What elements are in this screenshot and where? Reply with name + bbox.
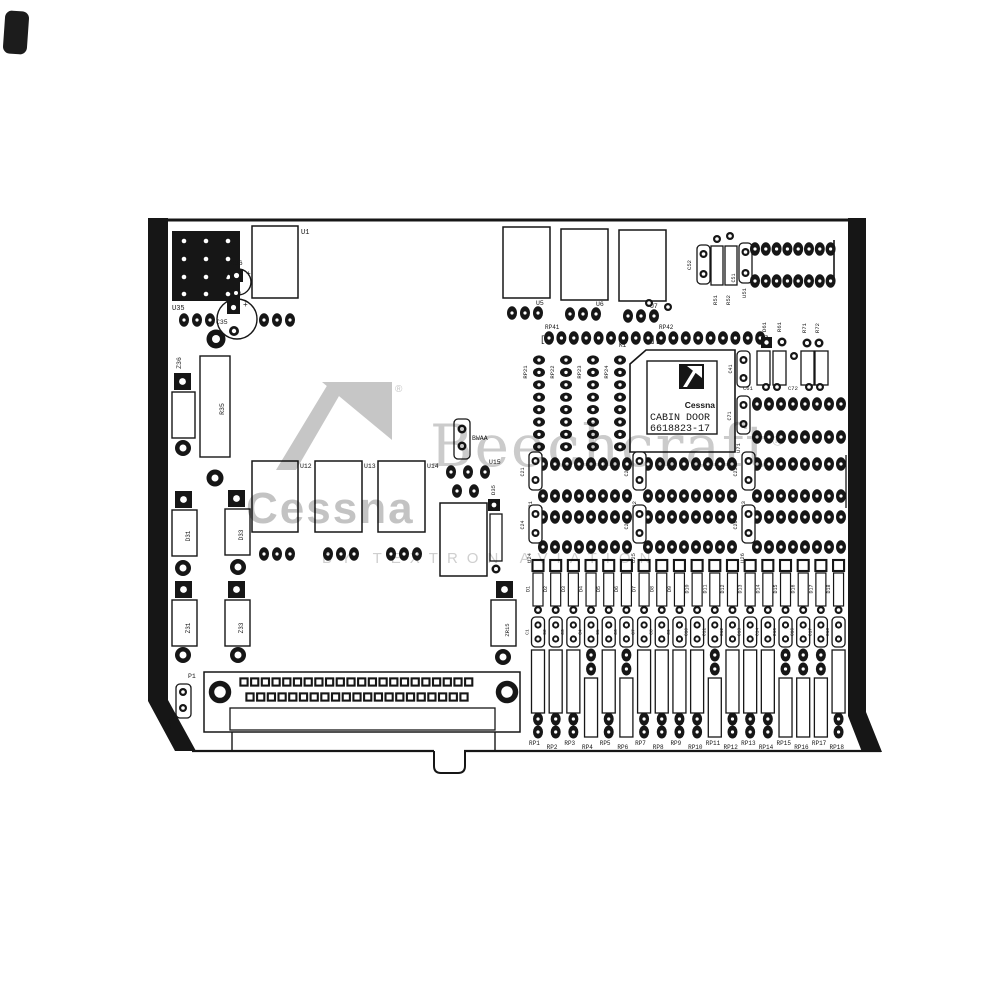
pad-hole: [702, 272, 706, 276]
ref-label: D7: [632, 586, 638, 592]
diode-outline: [568, 573, 578, 606]
ref-label: C1: [525, 629, 531, 635]
pad-hole: [779, 545, 782, 548]
ref-label: RP23: [576, 365, 583, 378]
pad-hole: [803, 435, 806, 438]
ref-label: RP1: [529, 740, 540, 747]
ref-label: C51: [731, 273, 737, 282]
resistor-pack-outline: [567, 650, 580, 713]
pad-hole: [718, 545, 721, 548]
pad-hole: [577, 462, 580, 465]
ref-label: C18: [825, 628, 831, 636]
pad-hole: [748, 608, 752, 612]
ref-label: C72: [788, 385, 798, 392]
open-square-pad: [401, 678, 408, 685]
pad-hole: [715, 237, 719, 241]
pad-hole: [275, 552, 278, 555]
pad-hole: [678, 717, 681, 720]
pad-hole: [589, 653, 592, 656]
pad-hole: [288, 552, 291, 555]
ref-label: D8: [649, 586, 655, 592]
pad-hole: [755, 402, 758, 405]
pad-hole: [180, 565, 187, 572]
pad-hole: [791, 545, 794, 548]
pad-hole: [639, 314, 642, 317]
open-square-pad: [727, 560, 738, 571]
pad-hole: [779, 515, 782, 518]
open-square-pad: [422, 678, 429, 685]
open-square-pad: [692, 560, 703, 571]
ref-label: RP4: [582, 744, 593, 751]
resistor-outline: [711, 246, 723, 285]
pad-hole: [666, 305, 670, 309]
pad-hole: [618, 396, 621, 399]
open-square-pad: [369, 678, 376, 685]
ref-label: BWAA: [472, 435, 488, 442]
pad-hole: [534, 459, 538, 463]
pad-hole: [572, 730, 575, 733]
bracket-mark: [: [655, 335, 660, 345]
pad-hole: [731, 637, 734, 640]
pad-hole: [837, 637, 840, 640]
ref-label: RP42: [659, 324, 674, 331]
pad-hole: [802, 637, 805, 640]
ic-outline: [440, 503, 487, 576]
connector-pin: [182, 239, 187, 244]
pad-hole: [775, 279, 778, 282]
pad-hole: [706, 545, 709, 548]
pad-hole: [618, 408, 621, 411]
connector-pin: [182, 257, 187, 262]
polarity-mark: +: [246, 270, 251, 279]
ref-label: RP9: [670, 740, 681, 747]
ic-outline: [619, 230, 666, 301]
pad-hole: [730, 515, 733, 518]
pad-hole: [784, 667, 787, 670]
open-square-pad: [294, 678, 301, 685]
pad-hole: [706, 494, 709, 497]
pad-hole: [731, 717, 734, 720]
pad-hole: [642, 637, 645, 640]
pad-hole: [618, 371, 621, 374]
pad-hole: [234, 291, 238, 295]
pad-hole: [837, 730, 840, 733]
open-square-pad: [674, 560, 685, 571]
pad-hole: [560, 336, 563, 339]
pad-hole: [591, 396, 594, 399]
pad-hole: [500, 654, 507, 661]
pad-hole: [802, 667, 805, 670]
pad-hole: [536, 623, 539, 626]
ic-outline: [561, 229, 608, 300]
pad-hole: [622, 336, 625, 339]
pad-hole: [613, 545, 616, 548]
pad-hole: [212, 335, 220, 343]
pad-hole: [837, 608, 841, 612]
resistor-pack-outline: [797, 678, 810, 737]
ref-label: U1: [301, 229, 309, 237]
pad-hole: [195, 318, 198, 321]
pad-hole: [618, 358, 621, 361]
pad-hole: [767, 545, 770, 548]
pad-hole: [775, 385, 779, 389]
open-square-pad: [279, 693, 286, 700]
pad-hole: [764, 247, 767, 250]
pad-hole: [589, 608, 593, 612]
resistor-pack-outline: [585, 678, 598, 737]
pad-hole: [784, 608, 788, 612]
ref-label: D14: [755, 584, 761, 593]
pad-hole: [767, 462, 770, 465]
resistor-pack-outline: [549, 650, 562, 713]
ref-label: RP6: [617, 744, 628, 751]
ref-label: D2: [543, 586, 549, 592]
pad-hole: [646, 545, 649, 548]
ref-label: RP18: [830, 744, 845, 751]
pad-hole: [235, 652, 242, 659]
pad-hole: [803, 545, 806, 548]
ref-label: C41: [728, 364, 734, 373]
ref-label: D9: [667, 586, 673, 592]
ref-label: D1: [526, 586, 532, 592]
open-square-pad: [439, 693, 446, 700]
ref-label: C14: [754, 628, 760, 636]
pad-hole: [702, 252, 706, 256]
ref-label: C35: [216, 319, 228, 326]
pad-hole: [180, 445, 187, 452]
open-square-pad: [709, 560, 720, 571]
resistor-pack-outline: [726, 650, 739, 713]
ref-label: C5: [595, 629, 601, 635]
pad-hole: [791, 494, 794, 497]
ref-label: R35: [219, 403, 226, 415]
pad-hole: [747, 531, 751, 535]
pad-hole: [753, 247, 756, 250]
ic-outline: [315, 461, 362, 532]
pad-hole: [819, 623, 822, 626]
pad-hole: [536, 311, 539, 314]
ic-outline: [378, 461, 425, 532]
pad-hole: [706, 515, 709, 518]
pad-hole: [565, 515, 568, 518]
pad-hole: [618, 433, 621, 436]
pad-hole: [564, 358, 567, 361]
open-square-pad: [407, 693, 414, 700]
pad-hole: [827, 494, 830, 497]
open-square-pad: [364, 693, 371, 700]
pad-hole: [718, 462, 721, 465]
pad-hole: [839, 494, 842, 497]
ref-label: U6: [596, 301, 604, 308]
pad-hole: [180, 652, 187, 659]
pad-hole: [815, 462, 818, 465]
resistor-pack-outline: [814, 678, 827, 737]
pad-hole: [537, 371, 540, 374]
pad-hole: [510, 311, 513, 314]
pad-hole: [625, 462, 628, 465]
pad-hole: [553, 462, 556, 465]
pad-hole: [837, 717, 840, 720]
ref-label: D15: [773, 584, 779, 593]
pad-hole: [658, 462, 661, 465]
pad-hole: [589, 515, 592, 518]
chip-product-text: CABIN DOOR: [650, 413, 710, 424]
ic-outline: [503, 227, 550, 298]
pad-hole: [537, 445, 540, 448]
diode-outline: [551, 573, 561, 606]
pad-hole: [779, 402, 782, 405]
pad-hole: [625, 515, 628, 518]
diode-outline: [491, 600, 516, 646]
pad-hole: [779, 462, 782, 465]
pad-hole: [779, 494, 782, 497]
ref-label: RP17: [812, 740, 827, 747]
diode-outline: [639, 573, 649, 606]
open-square-pad: [353, 693, 360, 700]
ref-label: C22: [624, 467, 630, 476]
pad-hole: [670, 545, 673, 548]
ref-label: C4: [578, 629, 584, 635]
diode-outline: [745, 573, 755, 606]
ref-label: D35: [490, 485, 497, 495]
pad-hole: [801, 608, 805, 612]
pad-hole: [713, 623, 716, 626]
ref-label: RP11: [706, 740, 721, 747]
pad-hole: [670, 515, 673, 518]
pad-hole: [780, 340, 784, 344]
pad-hole: [742, 376, 746, 380]
ref-label: U14: [427, 463, 439, 470]
ref-label: R71: [801, 322, 808, 333]
pad-hole: [792, 354, 796, 358]
open-square-pad: [396, 693, 403, 700]
pad-hole: [565, 494, 568, 497]
pad-hole: [755, 515, 758, 518]
open-square-pad: [550, 560, 561, 571]
pad-hole: [678, 730, 681, 733]
ref-label: D12: [720, 584, 726, 593]
open-square-pad: [289, 693, 296, 700]
pad-hole: [233, 495, 240, 502]
polarity-mark: +: [243, 301, 248, 310]
pad-hole: [734, 336, 737, 339]
connector-pin: [182, 292, 187, 297]
ref-label: C12: [719, 628, 725, 636]
open-square-pad: [386, 693, 393, 700]
pad-hole: [591, 371, 594, 374]
pad-hole: [352, 552, 355, 555]
pad-hole: [730, 545, 733, 548]
pad-hole: [326, 552, 329, 555]
chip-part-number: 6618823-17: [650, 424, 710, 435]
ref-label: C3: [560, 629, 566, 635]
pad-hole: [180, 586, 187, 593]
pad-hole: [449, 470, 452, 473]
open-square-pad: [257, 693, 264, 700]
pad-hole: [747, 459, 751, 463]
pad-hole: [819, 608, 823, 612]
pad-hole: [819, 667, 822, 670]
pad-hole: [494, 567, 498, 571]
ref-label: RP8: [653, 744, 664, 751]
ref-label: D5: [596, 586, 602, 592]
open-square-pad: [332, 693, 339, 700]
pad-hole: [534, 512, 538, 516]
pad-hole: [646, 515, 649, 518]
ref-label: C71: [727, 411, 733, 420]
pad-hole: [767, 402, 770, 405]
pad-hole: [601, 515, 604, 518]
pad-hole: [208, 318, 211, 321]
pad-hole: [807, 279, 810, 282]
pad-hole: [577, 515, 580, 518]
diode-outline: [798, 573, 808, 606]
pad-hole: [607, 730, 610, 733]
ref-label: Z33: [238, 622, 245, 633]
pad-hole: [589, 667, 592, 670]
ref-label: C9: [666, 629, 672, 635]
diode-outline: [533, 573, 543, 606]
ref-label: D11: [702, 584, 708, 593]
pad-hole: [553, 515, 556, 518]
pad-hole: [647, 301, 651, 305]
pad-hole: [695, 608, 699, 612]
pad-hole: [718, 494, 721, 497]
pad-hole: [746, 336, 749, 339]
pad-hole: [791, 402, 794, 405]
pad-hole: [472, 489, 475, 492]
ref-label: C13: [737, 628, 743, 636]
pad-hole: [547, 336, 550, 339]
resistor-outline: [815, 351, 828, 385]
scanned-pcb-diagram: U35U1C36++C35Z36R35D31D33Z31Z33P1C34U12U…: [0, 0, 1000, 1000]
pad-hole: [554, 717, 557, 720]
ref-label: D10: [685, 584, 691, 593]
pad-hole: [803, 515, 806, 518]
pad-hole: [638, 459, 642, 463]
resistor-pack-outline: [638, 650, 651, 713]
diode-outline: [816, 573, 826, 606]
open-square-pad: [380, 678, 387, 685]
pad-hole: [589, 623, 592, 626]
ref-label: U71: [735, 442, 742, 453]
pad-hole: [613, 462, 616, 465]
pad-hole: [402, 552, 405, 555]
pad-hole: [658, 515, 661, 518]
pad-hole: [731, 608, 735, 612]
ref-label: C24: [520, 520, 526, 529]
pad-hole: [537, 433, 540, 436]
pad-hole: [786, 279, 789, 282]
pad-hole: [742, 358, 746, 362]
ref-label: R61: [776, 321, 783, 332]
pad-hole: [537, 408, 540, 411]
diode-outline: [727, 573, 737, 606]
pad-hole: [625, 545, 628, 548]
resistor-outline: [773, 351, 786, 385]
pad-hole: [642, 717, 645, 720]
pad-hole: [784, 623, 787, 626]
pad-hole: [766, 730, 769, 733]
pad-hole: [807, 385, 811, 389]
pad-hole: [839, 402, 842, 405]
pad-hole: [572, 637, 575, 640]
open-square-pad: [454, 678, 461, 685]
pad-hole: [577, 494, 580, 497]
pad-hole: [678, 623, 681, 626]
pad-hole: [827, 402, 830, 405]
pad-hole: [678, 637, 681, 640]
pad-hole: [660, 730, 663, 733]
diode-outline: [604, 573, 614, 606]
pad-hole: [660, 637, 663, 640]
ref-label: P1: [188, 673, 196, 680]
pad-hole: [554, 608, 558, 612]
pad-hole: [818, 385, 822, 389]
pad-hole: [591, 383, 594, 386]
ic-outline: [252, 461, 298, 532]
pad-hole: [797, 279, 800, 282]
pad-hole: [601, 462, 604, 465]
pad-hole: [786, 247, 789, 250]
pad-hole: [572, 608, 576, 612]
pad-hole: [585, 336, 588, 339]
pad-hole: [625, 667, 628, 670]
pad-hole: [718, 515, 721, 518]
open-square-pad: [311, 693, 318, 700]
pad-hole: [791, 462, 794, 465]
pad-hole: [766, 717, 769, 720]
pad-hole: [658, 545, 661, 548]
pad-hole: [642, 730, 645, 733]
pad-hole: [755, 494, 758, 497]
pad-hole: [564, 445, 567, 448]
ref-label: C25: [624, 520, 630, 529]
pad-hole: [572, 336, 575, 339]
pad-hole: [180, 496, 187, 503]
pad-hole: [766, 637, 769, 640]
pad-hole: [803, 462, 806, 465]
pad-hole: [694, 545, 697, 548]
pad-hole: [589, 545, 592, 548]
pad-hole: [767, 515, 770, 518]
resistor-outline: [801, 351, 814, 385]
open-square-pad: [268, 693, 275, 700]
open-square-pad: [621, 560, 632, 571]
ref-label: C17: [807, 628, 813, 636]
pad-hole: [696, 637, 699, 640]
pad-hole: [749, 730, 752, 733]
pad-hole: [827, 462, 830, 465]
pad-hole: [755, 545, 758, 548]
pad-hole: [618, 420, 621, 423]
pad-hole: [682, 515, 685, 518]
resistor-pack-outline: [691, 650, 704, 713]
resistor-pack-outline: [779, 678, 792, 737]
open-square-pad: [390, 678, 397, 685]
pad-hole: [697, 336, 700, 339]
resistor-pack-outline: [744, 650, 757, 713]
ref-label: R51: [712, 294, 719, 305]
open-square-pad: [300, 693, 307, 700]
pad-hole: [564, 371, 567, 374]
open-square-pad: [375, 693, 382, 700]
pad-hole: [839, 462, 842, 465]
pad-hole: [601, 545, 604, 548]
ref-label: Z36: [176, 357, 183, 369]
pad-hole: [483, 470, 486, 473]
resistor-pack-outline: [602, 650, 615, 713]
